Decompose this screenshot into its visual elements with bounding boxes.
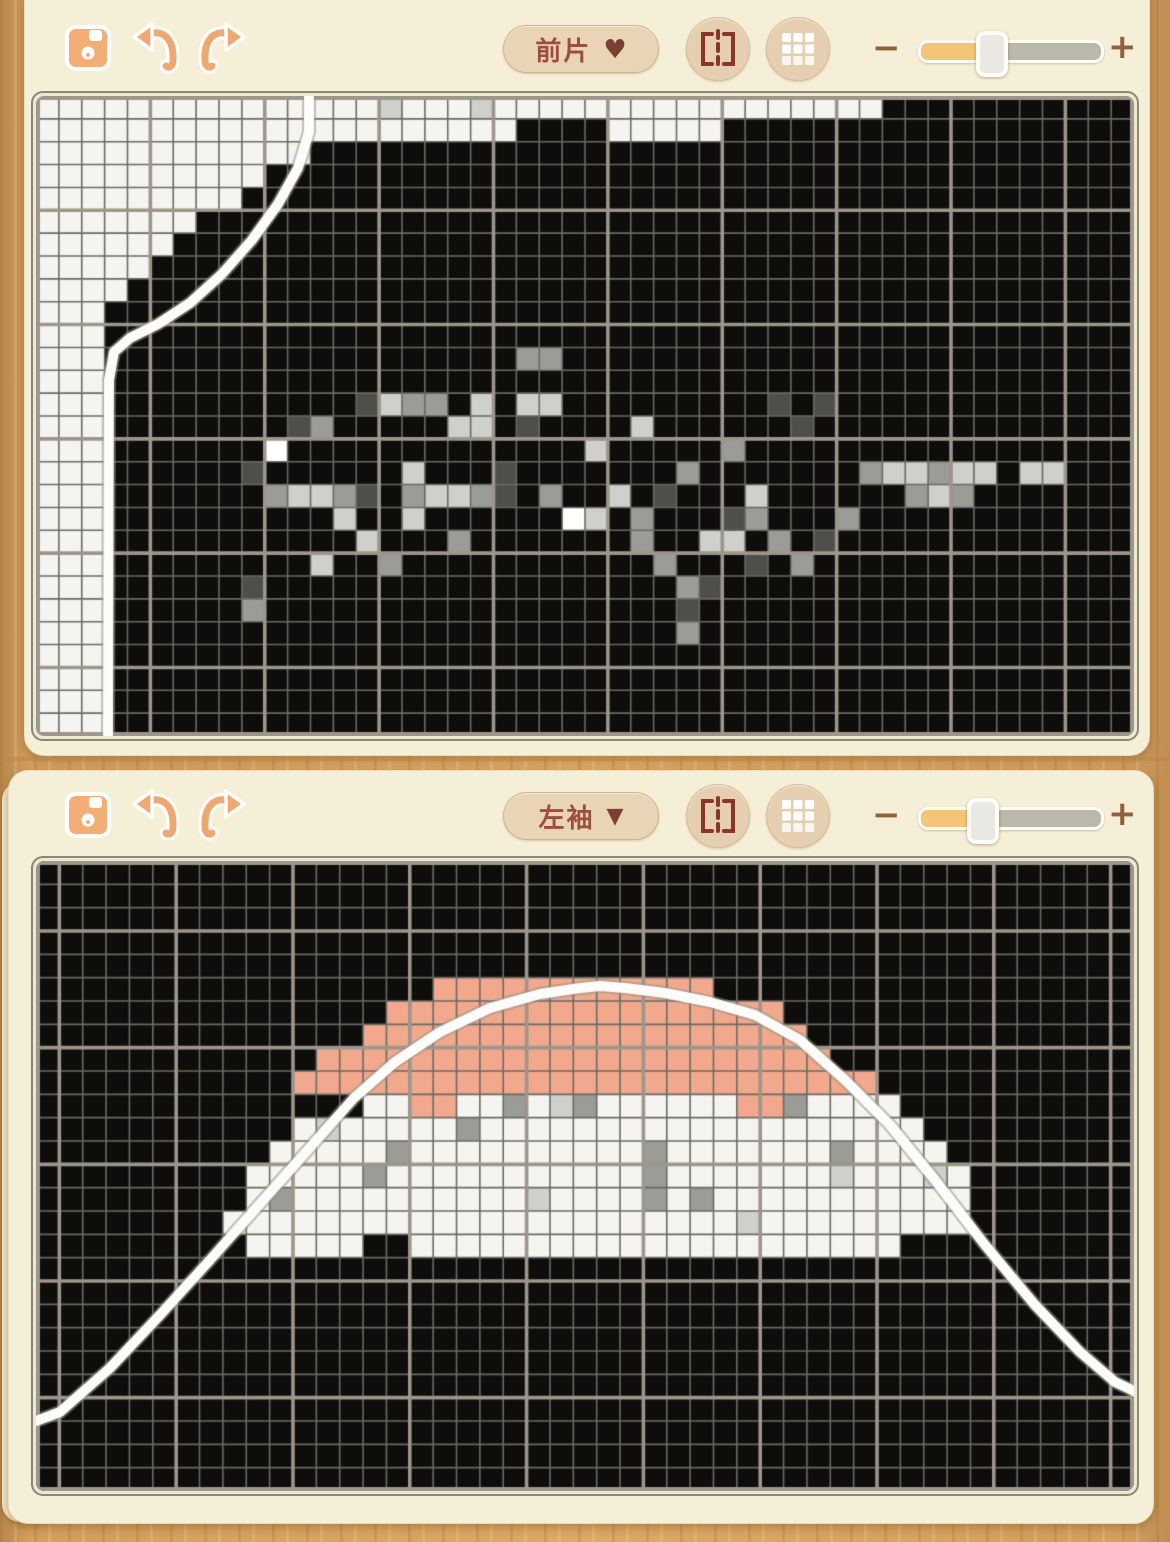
- panel-divider: [0, 757, 1170, 761]
- grid-3x3-icon: [780, 31, 816, 67]
- dropdown-triangle-icon: ▼: [607, 806, 624, 828]
- grid-toggle-button[interactable]: [766, 17, 830, 81]
- piece-dropdown[interactable]: 左袖 ▼: [503, 792, 659, 840]
- front-piece-canvas[interactable]: [36, 96, 1134, 736]
- redo-arrow-icon: [192, 20, 250, 76]
- piece-dropdown-label: 左袖: [539, 798, 595, 835]
- left-sleeve-chart-grid[interactable]: [31, 856, 1139, 1496]
- piece-dropdown-label: 前片: [535, 31, 591, 68]
- zoom-slider[interactable]: [918, 807, 1104, 830]
- zoom-out-button[interactable]: −: [872, 31, 901, 65]
- mirror-flip-button[interactable]: [686, 784, 750, 848]
- zoom-slider-thumb[interactable]: [976, 31, 1008, 77]
- redo-button[interactable]: [192, 20, 250, 76]
- zoom-slider-thumb[interactable]: [967, 798, 999, 844]
- zoom-slider[interactable]: [918, 40, 1104, 63]
- undo-button[interactable]: [128, 787, 186, 843]
- piece-dropdown[interactable]: 前片 ♥: [503, 25, 659, 73]
- redo-button[interactable]: [192, 787, 250, 843]
- mirror-flip-icon: [698, 29, 738, 69]
- redo-arrow-icon: [192, 787, 250, 843]
- zoom-in-button[interactable]: +: [1108, 30, 1137, 64]
- grid-toggle-button[interactable]: [766, 784, 830, 848]
- left-sleeve-canvas[interactable]: [36, 861, 1134, 1491]
- front-piece-chart-grid[interactable]: [31, 91, 1139, 741]
- grid-3x3-icon: [780, 798, 816, 834]
- undo-arrow-icon: [128, 20, 186, 76]
- dropdown-heart-icon: ♥: [603, 37, 626, 63]
- floppy-save-icon: [62, 22, 114, 74]
- floppy-save-icon: [62, 789, 114, 841]
- zoom-in-button[interactable]: +: [1108, 797, 1137, 831]
- undo-arrow-icon: [128, 787, 186, 843]
- mirror-flip-button[interactable]: [686, 17, 750, 81]
- zoom-out-button[interactable]: −: [872, 798, 901, 832]
- save-button[interactable]: [62, 22, 114, 74]
- undo-button[interactable]: [128, 20, 186, 76]
- mirror-flip-icon: [698, 796, 738, 836]
- save-button[interactable]: [62, 789, 114, 841]
